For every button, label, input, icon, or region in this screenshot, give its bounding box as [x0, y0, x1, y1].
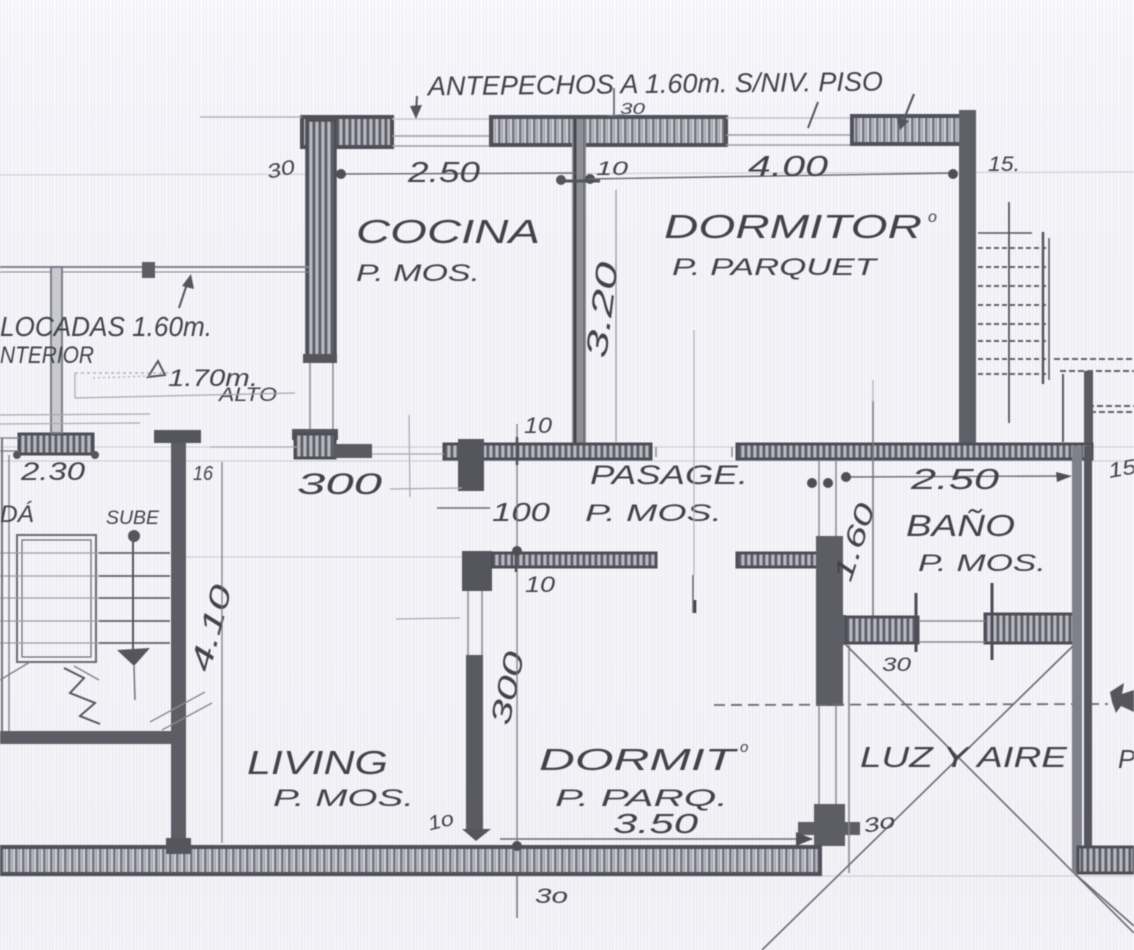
svg-text:15: 15 — [1106, 455, 1134, 483]
svg-text:2.50: 2.50 — [407, 157, 480, 189]
svg-text:DORMITOR: DORMITOR — [664, 208, 922, 245]
svg-text:3.50: 3.50 — [613, 808, 699, 839]
svg-text:16: 16 — [193, 463, 214, 485]
svg-text:COCINA: COCINA — [356, 213, 540, 250]
svg-text:300: 300 — [485, 648, 531, 727]
svg-text:15.: 15. — [988, 153, 1020, 176]
svg-text:P. PARQUET: P. PARQUET — [672, 254, 879, 281]
svg-text:P: P — [1118, 744, 1134, 774]
svg-text:2.30: 2.30 — [20, 458, 85, 486]
svg-text:300: 300 — [297, 468, 383, 501]
svg-text:PASAGE.: PASAGE. — [590, 460, 748, 490]
svg-text:3o: 3o — [535, 885, 568, 908]
svg-text:P. MOS.: P. MOS. — [918, 550, 1046, 577]
svg-text:10: 10 — [525, 572, 556, 597]
svg-text:P. MOS.: P. MOS. — [356, 260, 480, 287]
svg-text:ANTEPECHOS A 1.60m. S/NIV. PIS: ANTEPECHOS A 1.60m. S/NIV. PISO — [426, 67, 883, 102]
svg-text:100: 100 — [492, 497, 551, 527]
svg-text:DÁ: DÁ — [0, 501, 34, 528]
svg-text:30: 30 — [265, 156, 297, 183]
svg-text:3o: 3o — [861, 810, 897, 838]
svg-text:DORMIT: DORMIT — [539, 742, 738, 777]
svg-text:LIVING: LIVING — [247, 744, 388, 781]
svg-text:30: 30 — [882, 655, 912, 676]
svg-text:10: 10 — [596, 159, 629, 180]
svg-text:NTERIOR: NTERIOR — [0, 342, 94, 369]
svg-text:30: 30 — [620, 101, 645, 118]
svg-text:3.20: 3.20 — [580, 260, 625, 360]
svg-text:P. MOS.: P. MOS. — [273, 785, 414, 812]
svg-text:4.00: 4.00 — [748, 151, 828, 183]
svg-text:LOCADAS 1.60m.: LOCADAS 1.60m. — [0, 311, 212, 342]
svg-text:BAÑO: BAÑO — [906, 508, 1015, 543]
svg-text:4.10: 4.10 — [185, 582, 239, 675]
svg-text:LUZ Y AIRE: LUZ Y AIRE — [860, 742, 1068, 774]
svg-text:o: o — [740, 739, 748, 756]
svg-text:P. MOS.: P. MOS. — [585, 500, 722, 527]
svg-text:2.50: 2.50 — [909, 464, 999, 496]
svg-text:o: o — [928, 209, 937, 226]
svg-text:ALTO: ALTO — [218, 385, 277, 406]
svg-text:10: 10 — [524, 413, 553, 438]
svg-text:1o: 1o — [426, 808, 457, 836]
svg-text:SUBE: SUBE — [106, 508, 159, 529]
